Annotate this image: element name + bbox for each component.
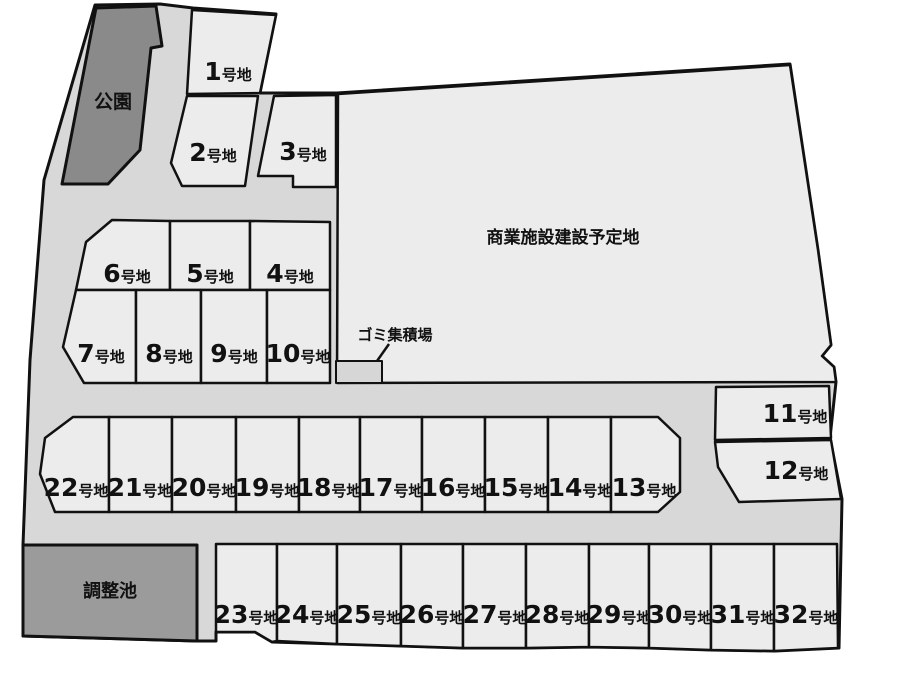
lot-9-area xyxy=(201,290,267,383)
lot-26-area xyxy=(401,544,463,648)
lot-28-area xyxy=(526,544,589,648)
lot-23: 23号地 xyxy=(214,544,279,642)
lot-28: 28号地 xyxy=(525,544,590,648)
garbage-label: ゴミ集積場 xyxy=(357,326,432,344)
lot-1: 1号地 xyxy=(187,10,276,94)
lot-31-area xyxy=(711,544,774,651)
commercial-label: 商業施設建設予定地 xyxy=(487,227,640,248)
lot-4: 4号地 xyxy=(250,221,330,290)
lot-map: 公園 商業施設建設予定地 ゴミ集積場 調整池 1号地 2号地 3号地 6号地 5… xyxy=(0,0,900,673)
lot-10-area xyxy=(267,290,330,383)
lot-9: 9号地 xyxy=(201,290,267,383)
garbage-area xyxy=(336,361,382,383)
lot-30: 30号地 xyxy=(648,544,713,650)
lot-8-area xyxy=(136,290,201,383)
lot-8: 8号地 xyxy=(136,290,201,383)
lot-18: 18号地 xyxy=(297,417,362,512)
lot-13: 13号地 xyxy=(611,417,680,512)
lot-24: 24号地 xyxy=(275,544,340,644)
lot-32: 32号地 xyxy=(774,544,839,651)
pond-label: 調整池 xyxy=(83,580,137,602)
lot-17: 17号地 xyxy=(359,417,424,512)
lot-12: 12号地 xyxy=(715,440,841,502)
retention-pond: 調整池 xyxy=(23,545,197,641)
lot-14: 14号地 xyxy=(548,417,613,512)
lot-25: 25号地 xyxy=(337,544,402,646)
lot-map-canvas: 公園 商業施設建設予定地 ゴミ集積場 調整池 1号地 2号地 3号地 6号地 5… xyxy=(0,0,900,673)
lot-24-area xyxy=(277,544,337,644)
lot-2-area xyxy=(171,96,258,186)
lot-16: 16号地 xyxy=(421,417,486,512)
lot-31: 31号地 xyxy=(711,544,776,651)
lot-27-area xyxy=(463,544,526,648)
lot-25-area xyxy=(337,544,401,646)
lot-5: 5号地 xyxy=(170,221,250,290)
lot-10: 10号地 xyxy=(266,290,331,383)
lot-21: 21号地 xyxy=(108,417,173,512)
lot-11: 11号地 xyxy=(715,386,831,440)
lot-15: 15号地 xyxy=(484,417,549,512)
lot-29: 29号地 xyxy=(587,544,652,648)
lot-26: 26号地 xyxy=(400,544,465,648)
park-label: 公園 xyxy=(94,91,132,113)
lot-19: 19号地 xyxy=(235,417,300,512)
lot-29-area xyxy=(589,544,649,648)
lot-30-area xyxy=(649,544,711,650)
lot-27: 27号地 xyxy=(463,544,528,648)
lot-2: 2号地 xyxy=(171,96,258,186)
lot-20: 20号地 xyxy=(172,417,237,512)
lot-32-area xyxy=(774,544,838,651)
